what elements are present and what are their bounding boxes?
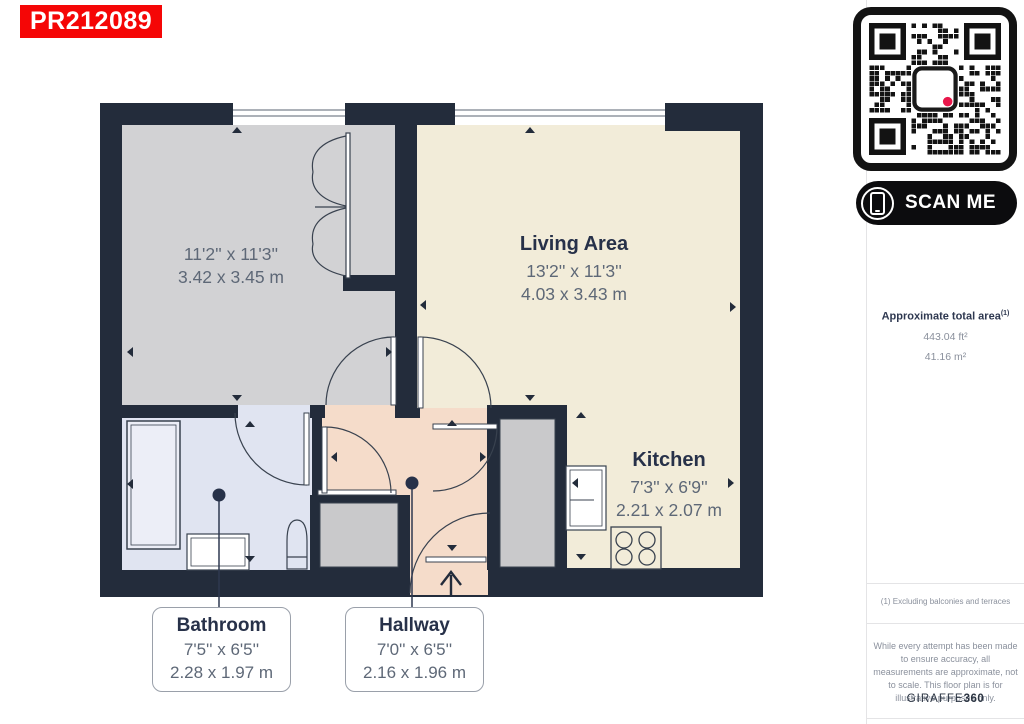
hall-closet-floor — [320, 503, 398, 567]
total-area-metric: 41.16 m² — [867, 351, 1024, 363]
room-label-living-area: Living Area 13'2'' x 11'3'' 4.03 x 3.43 … — [474, 231, 674, 306]
reference-badge: PR212089 — [20, 5, 162, 38]
bedroom-doorway — [325, 405, 395, 418]
total-area-note-ref: (1) — [1001, 310, 1010, 317]
room-label-bedroom: 11'2'' x 11'3'' 3.42 x 3.45 m — [131, 243, 331, 289]
total-area-title-text: Approximate total area — [882, 311, 1001, 323]
kitchen-dims-metric: 2.21 x 2.07 m — [569, 499, 769, 522]
qr-center-logo — [914, 68, 955, 109]
floor-plan — [95, 95, 810, 610]
kitchen-dims-imperial: 7'3'' x 6'9'' — [569, 476, 769, 499]
wardrobe-wall-stub — [343, 275, 395, 291]
sidebar-divider-1 — [867, 583, 1024, 584]
living-window — [455, 103, 665, 125]
bedroom-window — [233, 103, 345, 125]
sidebar-divider-2 — [867, 623, 1024, 624]
scan-me-pill: SCAN ME — [856, 181, 1017, 225]
living-area-dims-imperial: 13'2'' x 11'3'' — [474, 260, 674, 283]
bedroom-dims-imperial: 11'2'' x 11'3'' — [131, 243, 331, 266]
bathroom-name: Bathroom — [153, 613, 290, 638]
toilet — [287, 520, 307, 569]
hallway-dims-metric: 2.16 x 1.96 m — [346, 661, 483, 684]
living-doorway — [420, 408, 490, 418]
area-footnote: (1) Excluding balconies and terraces — [867, 597, 1024, 606]
callout-hallway: Hallway 7'0'' x 6'5'' 2.16 x 1.96 m — [345, 607, 484, 692]
qr-code — [853, 7, 1017, 171]
scan-me-label: SCAN ME — [905, 192, 1006, 214]
kitchen-closet-counter — [500, 419, 555, 567]
phone-icon — [861, 187, 894, 220]
brand-name: GIRAFFE — [907, 693, 964, 705]
bathroom-doorway — [238, 405, 310, 418]
bedroom-dims-metric: 3.42 x 3.45 m — [131, 266, 331, 289]
living-area-dims-metric: 4.03 x 3.43 m — [474, 283, 674, 306]
brand-number: 360 — [964, 693, 985, 705]
total-area-imperial: 443.04 ft² — [867, 331, 1024, 343]
kitchen-name: Kitchen — [569, 447, 769, 473]
giraffe360-logo: GIRAFFE360 — [867, 693, 1024, 705]
washbasin — [187, 534, 249, 570]
qr-red-dot — [943, 97, 953, 107]
total-area-title: Approximate total area(1) — [867, 310, 1024, 323]
bathroom-dims-imperial: 7'5'' x 6'5'' — [153, 638, 290, 661]
total-area-block: Approximate total area(1) 443.04 ft² 41.… — [867, 310, 1024, 363]
bathroom-dims-metric: 2.28 x 1.97 m — [153, 661, 290, 684]
room-label-kitchen: Kitchen 7'3'' x 6'9'' 2.21 x 2.07 m — [569, 447, 769, 522]
top-right-wall — [665, 103, 763, 131]
living-area-name: Living Area — [474, 231, 674, 257]
hallway-dims-imperial: 7'0'' x 6'5'' — [346, 638, 483, 661]
sidebar-divider-3 — [867, 718, 1024, 719]
shower — [127, 421, 180, 549]
hob — [611, 527, 661, 569]
hallway-name: Hallway — [346, 613, 483, 638]
callout-bathroom: Bathroom 7'5'' x 6'5'' 2.28 x 1.97 m — [152, 607, 291, 692]
